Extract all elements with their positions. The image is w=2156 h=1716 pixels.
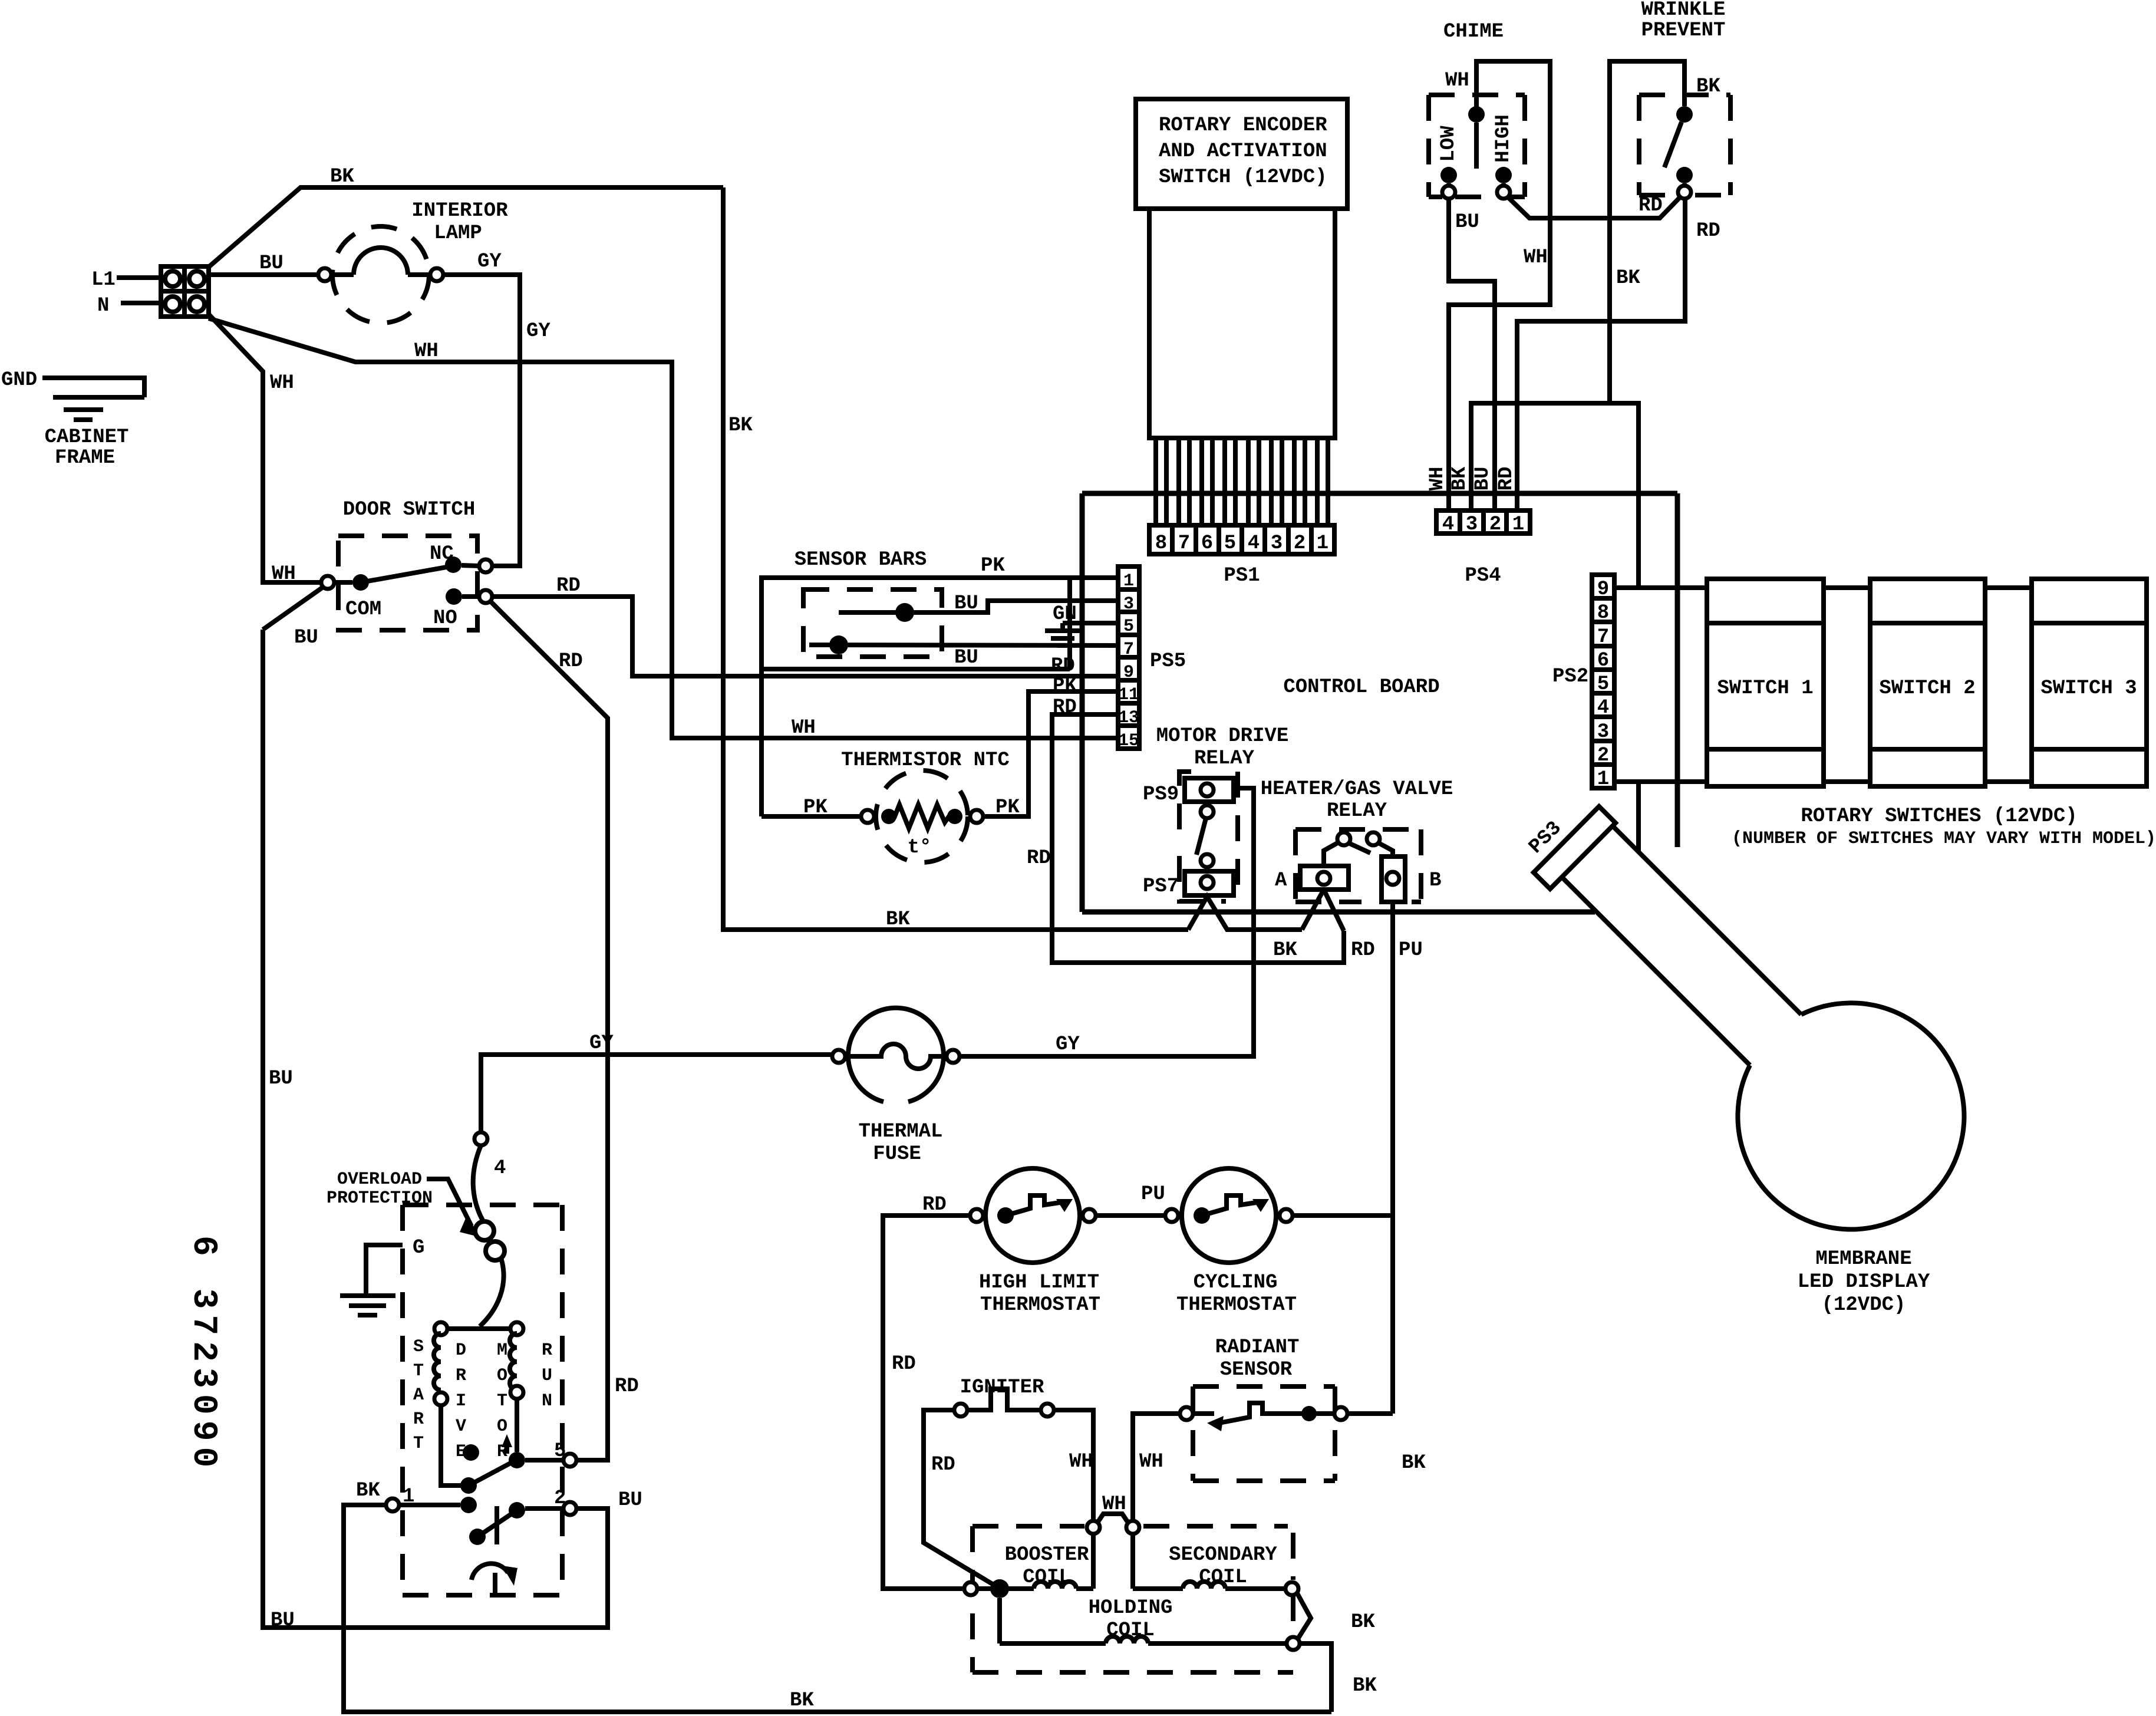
svg-text:N: N: [97, 295, 109, 317]
svg-text:BU: BU: [1455, 211, 1479, 233]
svg-text:5: 5: [1224, 532, 1236, 555]
svg-text:BK: BK: [1402, 1452, 1426, 1474]
svg-text:RD: RD: [556, 575, 581, 597]
svg-text:THERMOSTAT: THERMOSTAT: [1176, 1294, 1297, 1316]
svg-text:WH: WH: [1139, 1451, 1163, 1473]
svg-text:MOTOR DRIVE: MOTOR DRIVE: [1156, 725, 1288, 747]
svg-text:BU: BU: [954, 647, 978, 669]
svg-text:5: 5: [1597, 673, 1609, 696]
svg-text:GY: GY: [1056, 1033, 1080, 1056]
svg-text:PS4: PS4: [1465, 565, 1501, 587]
svg-text:SWITCH 2: SWITCH 2: [1879, 677, 1975, 700]
svg-text:3: 3: [1123, 594, 1134, 614]
svg-text:THERMOSTAT: THERMOSTAT: [980, 1294, 1100, 1316]
svg-text:LOW: LOW: [1438, 126, 1460, 162]
svg-text:ROTARY ENCODER: ROTARY ENCODER: [1159, 114, 1327, 137]
svg-text:3: 3: [1466, 513, 1478, 536]
svg-text:1: 1: [1597, 768, 1609, 791]
svg-text:GY: GY: [526, 320, 550, 342]
svg-text:B: B: [1429, 869, 1441, 892]
svg-text:RD: RD: [1351, 939, 1375, 961]
svg-text:4: 4: [1442, 513, 1454, 536]
svg-text:A: A: [1275, 869, 1287, 892]
svg-text:4: 4: [1597, 697, 1609, 719]
svg-text:HEATER/GAS VALVE: HEATER/GAS VALVE: [1261, 778, 1453, 801]
svg-text:PS1: PS1: [1224, 565, 1260, 587]
svg-text:RELAY: RELAY: [1194, 747, 1255, 770]
svg-text:BK: BK: [1449, 466, 1471, 490]
svg-text:BK: BK: [356, 1480, 380, 1502]
svg-text:GY: GY: [477, 251, 502, 273]
svg-text:BU: BU: [269, 1068, 293, 1090]
svg-text:RD: RD: [1639, 195, 1663, 217]
svg-text:15: 15: [1118, 731, 1139, 751]
svg-text:CONTROL BOARD: CONTROL BOARD: [1283, 676, 1439, 699]
svg-text:BK: BK: [790, 1689, 814, 1712]
svg-text:7: 7: [1597, 626, 1609, 648]
svg-text:RD: RD: [559, 650, 583, 673]
svg-text:PS9: PS9: [1143, 783, 1179, 806]
svg-text:HIGH: HIGH: [1492, 114, 1515, 163]
svg-text:RELAY: RELAY: [1327, 800, 1387, 822]
svg-text:5: 5: [554, 1440, 566, 1463]
svg-text:WH: WH: [1426, 467, 1449, 491]
svg-text:T: T: [413, 1361, 424, 1381]
svg-text:U: U: [542, 1366, 552, 1386]
svg-text:RD: RD: [1053, 696, 1077, 719]
svg-text:V: V: [456, 1417, 466, 1437]
svg-text:FUSE: FUSE: [873, 1143, 921, 1165]
svg-text:THERMAL: THERMAL: [859, 1121, 943, 1143]
svg-text:L1: L1: [91, 269, 116, 291]
svg-text:BU: BU: [1472, 467, 1494, 491]
svg-text:GY: GY: [589, 1032, 614, 1055]
svg-text:WRINKLE: WRINKLE: [1641, 0, 1726, 21]
svg-text:RD: RD: [615, 1375, 639, 1398]
svg-text:6: 6: [1597, 650, 1609, 672]
svg-text:RD: RD: [1495, 467, 1518, 491]
svg-text:PS5: PS5: [1150, 650, 1186, 673]
svg-text:BK: BK: [1273, 939, 1297, 961]
svg-text:BU: BU: [618, 1489, 642, 1511]
svg-text:T: T: [413, 1434, 424, 1454]
svg-text:RD: RD: [931, 1454, 955, 1476]
svg-text:BOOSTER: BOOSTER: [1005, 1544, 1089, 1566]
svg-text:CABINET: CABINET: [45, 426, 129, 449]
svg-text:WH: WH: [792, 717, 816, 739]
svg-text:HOLDING: HOLDING: [1089, 1597, 1173, 1619]
svg-text:INTERIOR: INTERIOR: [411, 200, 508, 222]
svg-text:4: 4: [1248, 532, 1260, 555]
svg-text:RADIANT: RADIANT: [1215, 1336, 1300, 1359]
svg-text:SWITCH 1: SWITCH 1: [1717, 677, 1813, 700]
svg-text:BK: BK: [1616, 267, 1640, 289]
svg-text:O: O: [497, 1417, 507, 1437]
svg-text:BK: BK: [1696, 75, 1720, 98]
svg-text:RD: RD: [1696, 220, 1720, 242]
svg-text:7: 7: [1178, 532, 1190, 555]
svg-text:FRAME: FRAME: [55, 447, 115, 469]
svg-text:4: 4: [494, 1157, 506, 1180]
svg-text:BU: BU: [954, 592, 978, 615]
svg-text:O: O: [497, 1366, 507, 1386]
svg-text:NC: NC: [430, 543, 454, 565]
svg-text:GND: GND: [1, 369, 37, 391]
svg-text:SECONDARY: SECONDARY: [1169, 1544, 1277, 1566]
svg-text:R: R: [542, 1340, 552, 1361]
svg-text:BU: BU: [259, 252, 283, 275]
svg-text:1: 1: [1123, 571, 1134, 591]
svg-text:PK: PK: [1053, 675, 1077, 697]
svg-text:5: 5: [1123, 617, 1134, 637]
svg-text:HIGH LIMIT: HIGH LIMIT: [979, 1272, 1099, 1294]
svg-text:BU: BU: [271, 1609, 295, 1632]
svg-text:NO: NO: [433, 607, 457, 630]
svg-text:RD: RD: [922, 1194, 947, 1216]
svg-text:RD: RD: [1027, 847, 1051, 869]
svg-text:RD: RD: [892, 1353, 916, 1375]
svg-text:BK: BK: [728, 414, 753, 437]
svg-text:S: S: [413, 1337, 424, 1357]
svg-text:SWITCH 3: SWITCH 3: [2040, 677, 2137, 700]
svg-text:SENSOR: SENSOR: [1220, 1359, 1293, 1381]
svg-text:M: M: [497, 1340, 507, 1361]
svg-text:AND ACTIVATION: AND ACTIVATION: [1159, 140, 1327, 163]
svg-text:1: 1: [1317, 532, 1328, 555]
svg-text:LAMP: LAMP: [434, 222, 482, 245]
svg-text:I: I: [456, 1391, 466, 1411]
svg-text:G: G: [413, 1237, 424, 1259]
svg-text:PK: PK: [995, 796, 1020, 819]
svg-text:8: 8: [1597, 602, 1609, 624]
svg-text:2: 2: [1597, 745, 1609, 767]
svg-text:13: 13: [1118, 708, 1139, 728]
svg-text:(12VDC): (12VDC): [1822, 1294, 1906, 1316]
svg-text:R: R: [456, 1366, 466, 1386]
svg-text:WH: WH: [414, 340, 439, 363]
svg-text:N: N: [542, 1391, 552, 1411]
svg-text:8: 8: [1155, 532, 1167, 555]
svg-text:2: 2: [1489, 513, 1501, 536]
svg-text:9: 9: [1123, 663, 1134, 683]
svg-text:SWITCH (12VDC): SWITCH (12VDC): [1159, 166, 1327, 189]
svg-text:A: A: [413, 1385, 424, 1405]
svg-text:WH: WH: [1445, 70, 1469, 92]
svg-text:PU: PU: [1399, 939, 1423, 961]
svg-text:ROTARY SWITCHES (12VDC): ROTARY SWITCHES (12VDC): [1801, 805, 2077, 828]
svg-text:GN: GN: [1053, 603, 1077, 625]
svg-text:D: D: [456, 1340, 466, 1361]
svg-text:BU: BU: [294, 627, 318, 649]
svg-text:t°: t°: [908, 836, 932, 859]
svg-text:9: 9: [1597, 578, 1609, 601]
svg-text:(NUMBER OF SWITCHES MAY VARY W: (NUMBER OF SWITCHES MAY VARY WITH MODEL): [1732, 829, 2156, 849]
svg-text:WH: WH: [272, 563, 296, 585]
svg-text:RD: RD: [1051, 655, 1075, 677]
svg-text:PS2: PS2: [1552, 666, 1588, 688]
svg-text:PS3: PS3: [1525, 817, 1566, 858]
svg-text:COM: COM: [345, 598, 381, 621]
svg-text:CHIME: CHIME: [1443, 21, 1504, 43]
svg-text:WH: WH: [270, 372, 294, 394]
svg-text:2: 2: [554, 1487, 566, 1510]
svg-text:T: T: [497, 1391, 507, 1411]
svg-text:PK: PK: [981, 555, 1005, 577]
svg-text:PU: PU: [1141, 1183, 1165, 1206]
svg-text:OVERLOAD: OVERLOAD: [337, 1170, 422, 1190]
svg-text:11: 11: [1118, 685, 1139, 705]
svg-text:2: 2: [1294, 532, 1306, 555]
svg-text:DOOR SWITCH: DOOR SWITCH: [343, 499, 475, 521]
svg-text:PS7: PS7: [1143, 875, 1179, 898]
svg-text:1: 1: [1512, 513, 1524, 536]
svg-text:PK: PK: [803, 796, 828, 819]
svg-text:6: 6: [1201, 532, 1213, 555]
svg-text:CYCLING: CYCLING: [1194, 1272, 1278, 1294]
svg-text:BK: BK: [1353, 1675, 1377, 1697]
svg-text:MEMBRANE: MEMBRANE: [1815, 1248, 1911, 1270]
svg-text:BK: BK: [1351, 1611, 1375, 1633]
svg-text:BK: BK: [330, 166, 354, 188]
svg-text:PREVENT: PREVENT: [1641, 19, 1726, 42]
svg-text:WH: WH: [1069, 1451, 1093, 1473]
svg-text:3: 3: [1271, 532, 1283, 555]
svg-text:BK: BK: [886, 908, 910, 931]
svg-text:SENSOR BARS: SENSOR BARS: [795, 549, 927, 571]
svg-text:6 3723090: 6 3723090: [184, 1236, 222, 1473]
svg-text:3: 3: [1597, 721, 1609, 743]
svg-text:R: R: [413, 1409, 424, 1430]
svg-text:WH: WH: [1524, 246, 1548, 269]
svg-text:LED DISPLAY: LED DISPLAY: [1798, 1271, 1930, 1293]
svg-text:7: 7: [1123, 640, 1134, 660]
